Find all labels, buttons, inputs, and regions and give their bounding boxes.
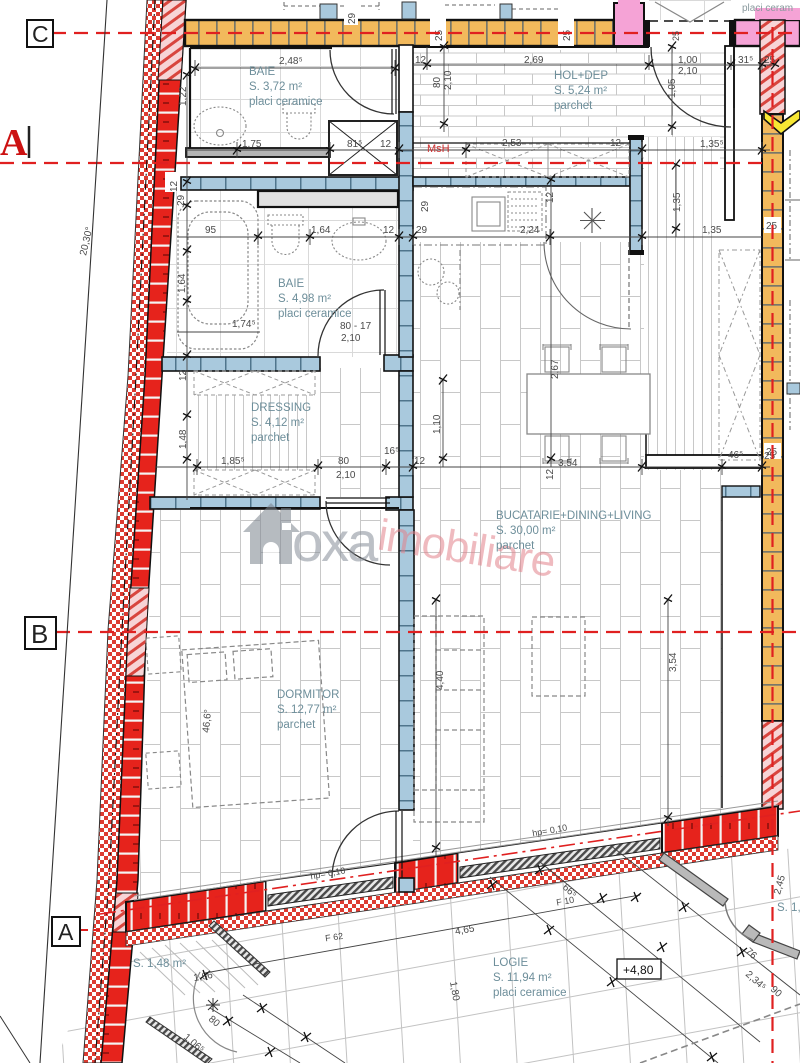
svg-text:2,10: 2,10 xyxy=(336,470,356,481)
svg-text:80: 80 xyxy=(432,76,443,88)
svg-text:3,54: 3,54 xyxy=(558,458,578,469)
svg-text:1,35: 1,35 xyxy=(672,192,683,212)
svg-text:A: A xyxy=(58,919,74,945)
svg-text:HOL+DEP: HOL+DEP xyxy=(554,70,608,82)
svg-text:B: B xyxy=(31,619,48,649)
svg-text:16⁵: 16⁵ xyxy=(384,446,399,457)
svg-text:12: 12 xyxy=(415,55,427,66)
svg-text:LOGIE: LOGIE xyxy=(493,957,528,969)
svg-text:46⁵: 46⁵ xyxy=(728,450,743,461)
svg-text:BUCATARIE+DINING+LIVING: BUCATARIE+DINING+LIVING xyxy=(496,510,652,522)
svg-text:oxa: oxa xyxy=(292,510,379,573)
svg-text:S. 1,: S. 1, xyxy=(777,902,800,914)
svg-text:1,48: 1,48 xyxy=(178,429,189,449)
svg-text:placi ceram: placi ceram xyxy=(742,3,793,14)
svg-text:31⁵: 31⁵ xyxy=(738,55,753,66)
svg-text:25: 25 xyxy=(764,55,776,66)
svg-text:S. 5,24 m²: S. 5,24 m² xyxy=(554,85,607,97)
svg-text:46,6°: 46,6° xyxy=(201,709,214,733)
svg-text:2,10: 2,10 xyxy=(678,66,698,77)
svg-text:MsH: MsH xyxy=(427,143,450,155)
svg-text:2,10: 2,10 xyxy=(443,70,454,90)
svg-text:12: 12 xyxy=(414,456,426,467)
svg-text:S. 1,48 m²: S. 1,48 m² xyxy=(133,958,186,970)
svg-text:80: 80 xyxy=(338,456,350,467)
svg-text:3,54: 3,54 xyxy=(668,652,679,672)
svg-text:1,85⁵: 1,85⁵ xyxy=(221,456,245,467)
svg-text:1,22: 1,22 xyxy=(178,86,189,106)
svg-text:1,64: 1,64 xyxy=(177,273,188,293)
svg-text:81⁵: 81⁵ xyxy=(347,139,362,150)
svg-text:A: A xyxy=(0,122,28,164)
svg-text:parchet: parchet xyxy=(554,100,593,112)
svg-text:80 - 17: 80 - 17 xyxy=(340,321,372,332)
svg-text:DORMITOR: DORMITOR xyxy=(277,689,339,701)
svg-text:DRESSING: DRESSING xyxy=(251,402,311,414)
svg-text:S. 4,98 m²: S. 4,98 m² xyxy=(278,293,331,305)
svg-text:25: 25 xyxy=(562,29,573,41)
svg-text:29: 29 xyxy=(420,200,431,212)
svg-text:25: 25 xyxy=(671,31,681,41)
svg-text:placi ceramice: placi ceramice xyxy=(493,987,567,999)
svg-text:S. 30,00 m²: S. 30,00 m² xyxy=(496,525,556,537)
svg-text:2,69: 2,69 xyxy=(524,55,544,66)
svg-text:4,40: 4,40 xyxy=(435,670,446,690)
svg-text:1,64: 1,64 xyxy=(311,225,331,236)
svg-text:29: 29 xyxy=(416,225,428,236)
svg-text:placi ceramice: placi ceramice xyxy=(278,308,352,320)
svg-text:S. 3,72 m²: S. 3,72 m² xyxy=(249,81,302,93)
svg-text:parchet: parchet xyxy=(277,719,316,731)
svg-text:BAIE: BAIE xyxy=(249,66,276,78)
svg-text:1,10: 1,10 xyxy=(432,414,443,434)
svg-text:1,35⁵: 1,35⁵ xyxy=(700,139,724,150)
svg-text:S. 11,94 m²: S. 11,94 m² xyxy=(493,972,552,984)
svg-text:12: 12 xyxy=(169,180,180,192)
svg-text:12: 12 xyxy=(178,369,189,381)
svg-text:S. 12,77 m²: S. 12,77 m² xyxy=(277,704,337,716)
svg-text:2,24: 2,24 xyxy=(520,225,540,236)
svg-text:parchet: parchet xyxy=(496,540,535,552)
svg-text:2,48⁵: 2,48⁵ xyxy=(279,56,303,67)
svg-text:2,53: 2,53 xyxy=(502,138,522,149)
svg-text:1,74⁵: 1,74⁵ xyxy=(232,319,256,330)
svg-text:+4,80: +4,80 xyxy=(623,963,654,977)
svg-text:25: 25 xyxy=(434,29,445,41)
svg-text:1,75: 1,75 xyxy=(242,139,262,150)
svg-text:2,67: 2,67 xyxy=(550,359,561,379)
svg-text:95: 95 xyxy=(205,225,217,236)
svg-text:29: 29 xyxy=(176,194,187,206)
svg-text:12: 12 xyxy=(380,139,392,150)
svg-text:2,10: 2,10 xyxy=(341,333,361,344)
svg-text:1,05: 1,05 xyxy=(667,78,678,98)
svg-text:C: C xyxy=(32,21,49,47)
svg-text:BAIE: BAIE xyxy=(278,278,305,290)
svg-text:12: 12 xyxy=(545,191,556,203)
svg-text:placi ceramice: placi ceramice xyxy=(249,96,323,108)
svg-text:12: 12 xyxy=(610,138,622,149)
svg-text:1,00: 1,00 xyxy=(678,55,698,66)
svg-text:12: 12 xyxy=(545,468,556,480)
svg-text:S. 4,12 m²: S. 4,12 m² xyxy=(251,417,304,429)
svg-text:25: 25 xyxy=(764,451,776,462)
svg-text:parchet: parchet xyxy=(251,432,290,444)
svg-text:12: 12 xyxy=(383,225,395,236)
svg-text:1,35: 1,35 xyxy=(702,225,722,236)
svg-text:29: 29 xyxy=(347,12,358,24)
